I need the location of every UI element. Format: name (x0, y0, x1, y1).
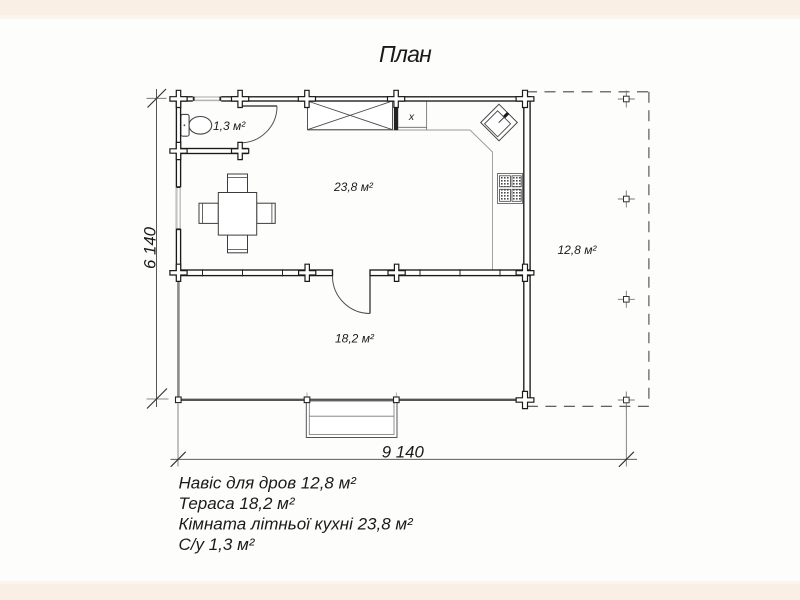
svg-text:12,8 м²: 12,8 м² (558, 243, 598, 257)
svg-text:Навіс для дров 12,8 м²: Навіс для дров 12,8 м² (179, 474, 358, 493)
svg-text:1,3 м²: 1,3 м² (213, 119, 246, 133)
svg-text:18,2 м²: 18,2 м² (335, 332, 375, 346)
svg-text:x: x (408, 111, 415, 123)
svg-text:6 140: 6 140 (141, 226, 160, 269)
svg-text:9 140: 9 140 (382, 442, 425, 461)
svg-text:Кімната літньої кухні 23,8 м²: Кімната літньої кухні 23,8 м² (179, 515, 415, 534)
svg-text:Тераса 18,2 м²: Тераса 18,2 м² (179, 494, 296, 513)
svg-text:План: План (379, 41, 432, 67)
svg-text:С/у 1,3 м²: С/у 1,3 м² (179, 535, 256, 554)
svg-text:23,8 м²: 23,8 м² (333, 180, 374, 194)
